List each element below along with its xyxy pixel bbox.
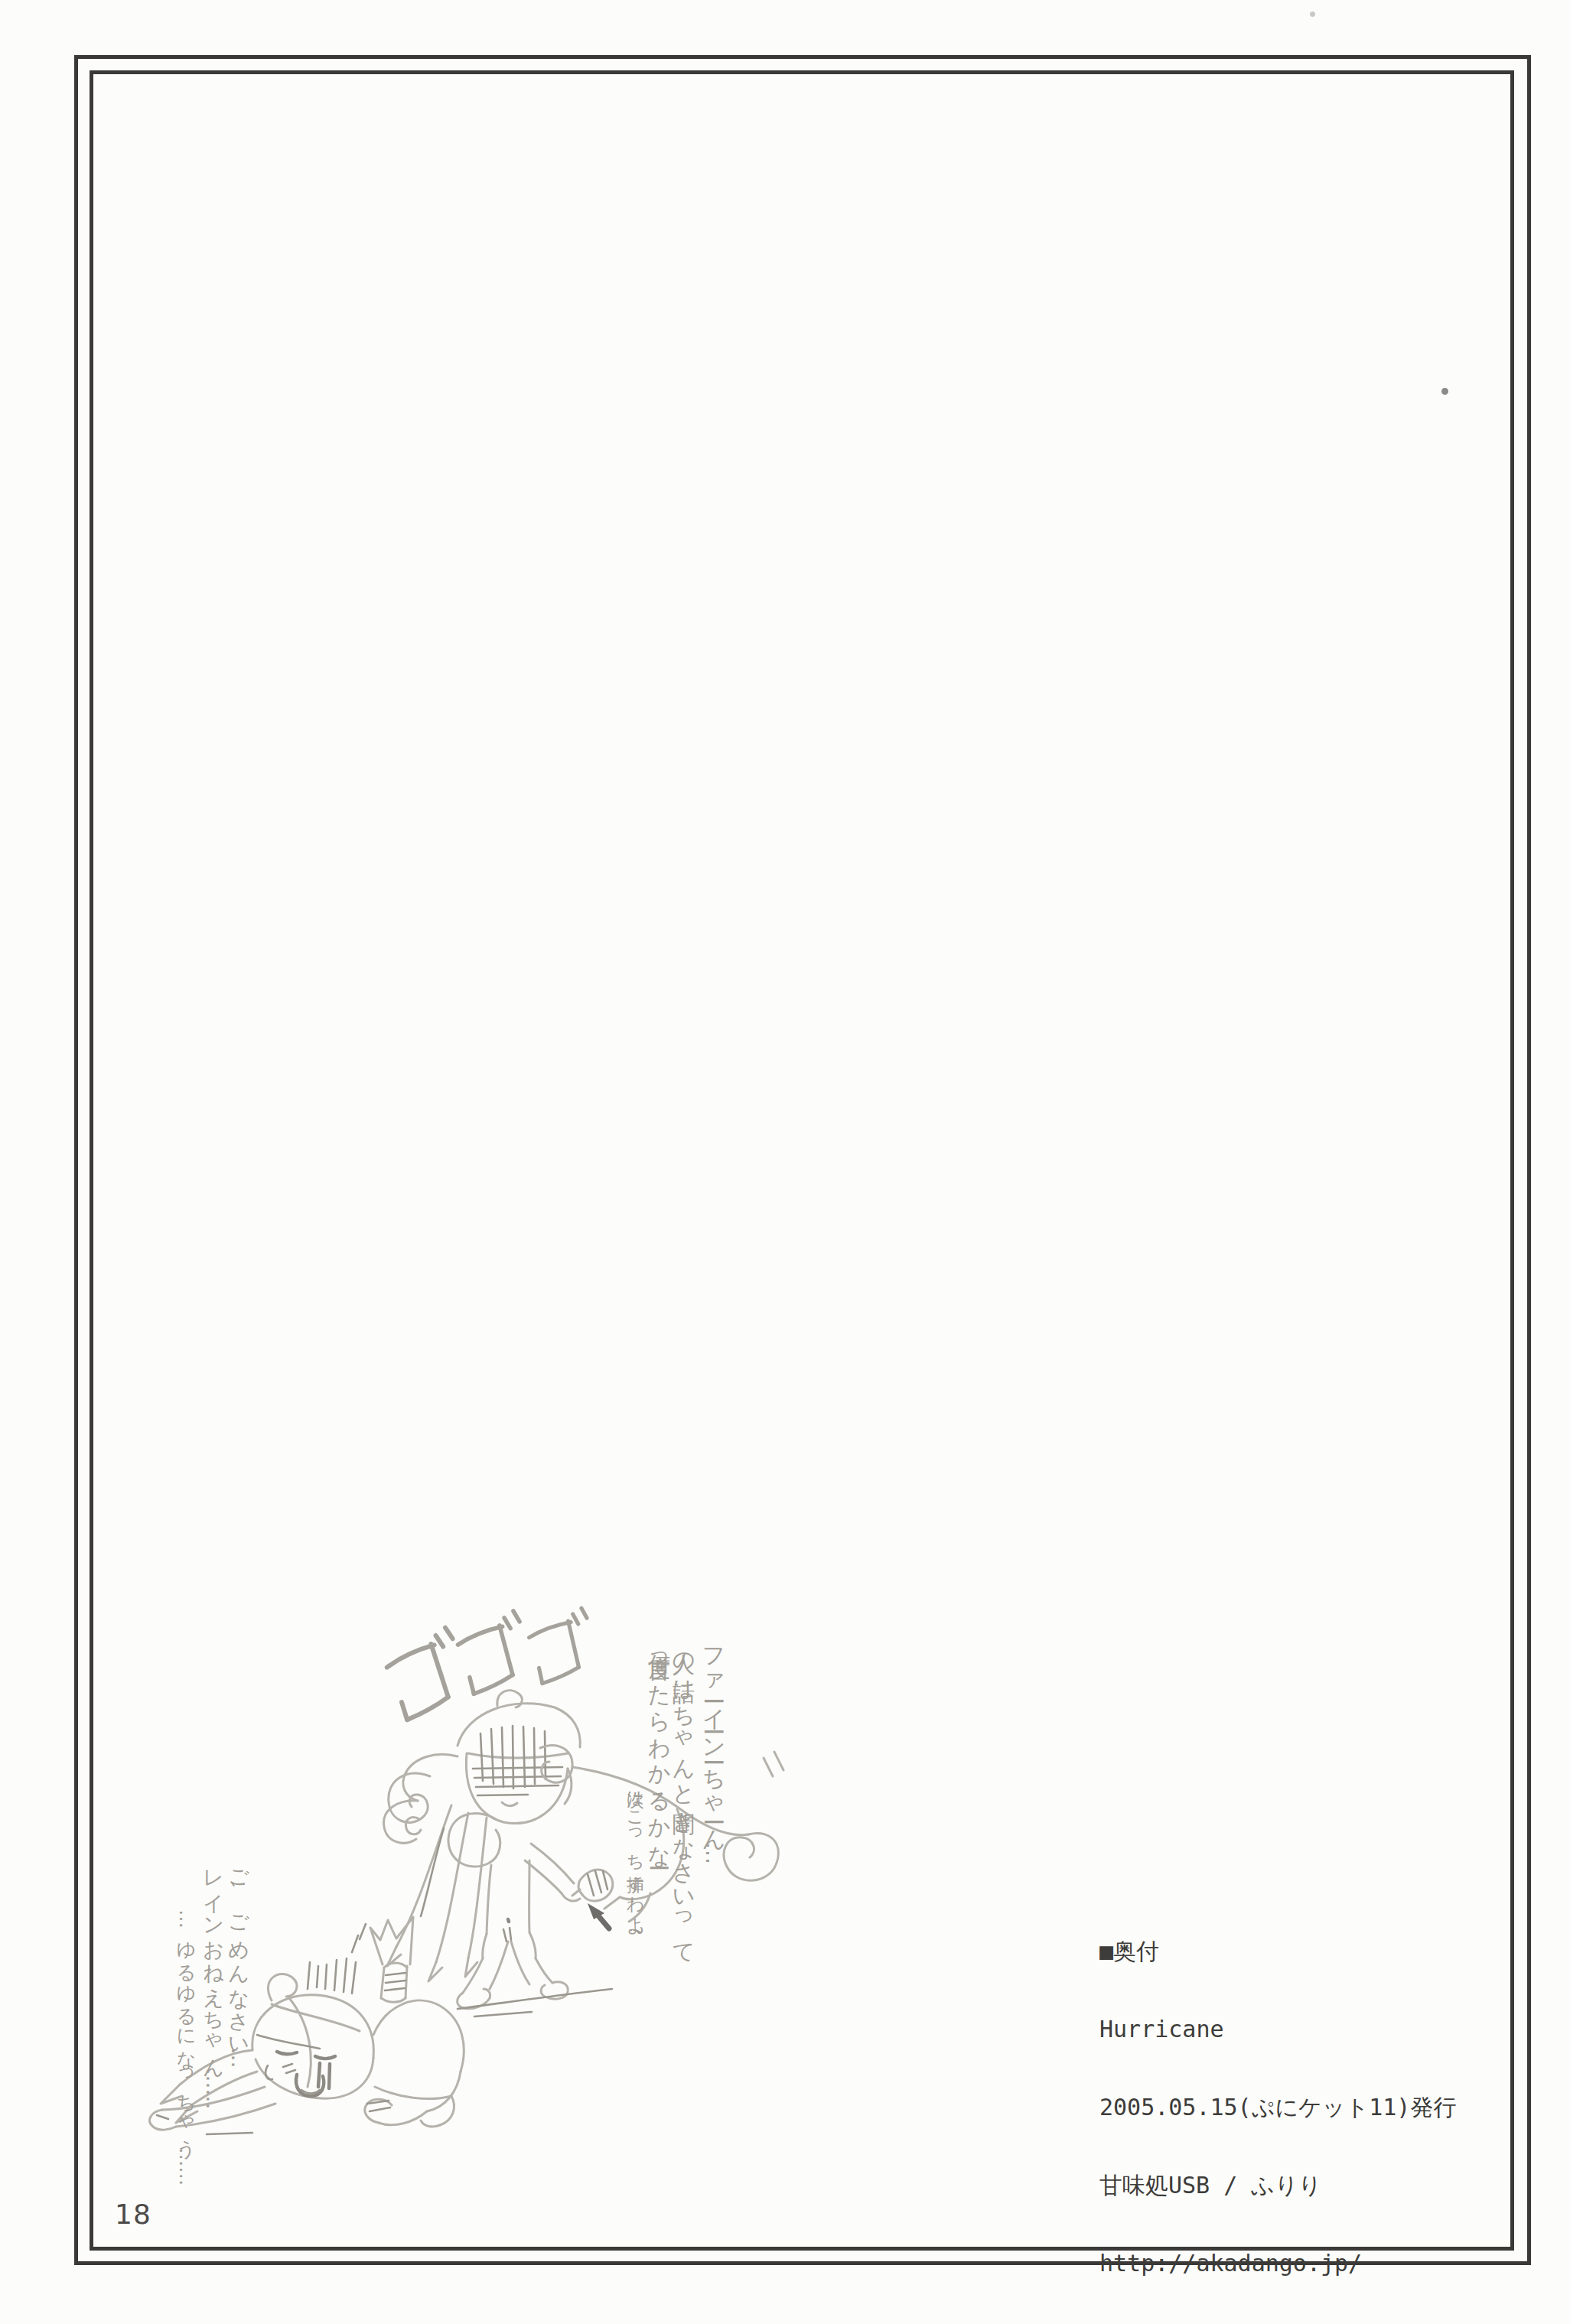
speech-left-line1: ご、ごめんなさい… bbox=[225, 1856, 252, 2254]
page-number: 18 bbox=[115, 2199, 151, 2230]
colophon-block: ■奥付 Hurricane 2005.05.15(ぷにケット11)発行 甘味処U… bbox=[1099, 1886, 1456, 2324]
sfx-gogogo bbox=[382, 1608, 592, 1722]
colophon-heading: ■奥付 bbox=[1099, 1938, 1456, 1964]
scan-speck bbox=[1310, 11, 1315, 17]
colophon-title: Hurricane bbox=[1099, 2016, 1456, 2042]
wind-up-key-icon bbox=[572, 1870, 613, 1901]
speech-left-line2: レインおねえちゃん…… bbox=[200, 1856, 227, 2254]
wind-up-key-back-icon bbox=[352, 1917, 413, 2002]
colophon-published: 2005.05.15(ぷにケット11)発行 bbox=[1099, 2095, 1456, 2121]
colophon-url: http://akadango.jp/ bbox=[1099, 2251, 1456, 2277]
speech-right-small: 次はこっち挿すわよ? bbox=[624, 1778, 648, 2114]
scanned-doujin-page: { "page": { "page_number": "18", "paper_… bbox=[0, 0, 1570, 2324]
speech-right-line1: ファーイーンーちゃーん… bbox=[698, 1632, 729, 2122]
speech-right-line3: 何度言ったらわかるかなー bbox=[644, 1637, 675, 2127]
speech-left-line3: …ゆるゆるになっちゃう…… bbox=[174, 1909, 199, 2307]
colophon-circle: 甘味処USB / ふりり bbox=[1099, 2173, 1456, 2199]
scan-speck bbox=[1441, 388, 1448, 395]
